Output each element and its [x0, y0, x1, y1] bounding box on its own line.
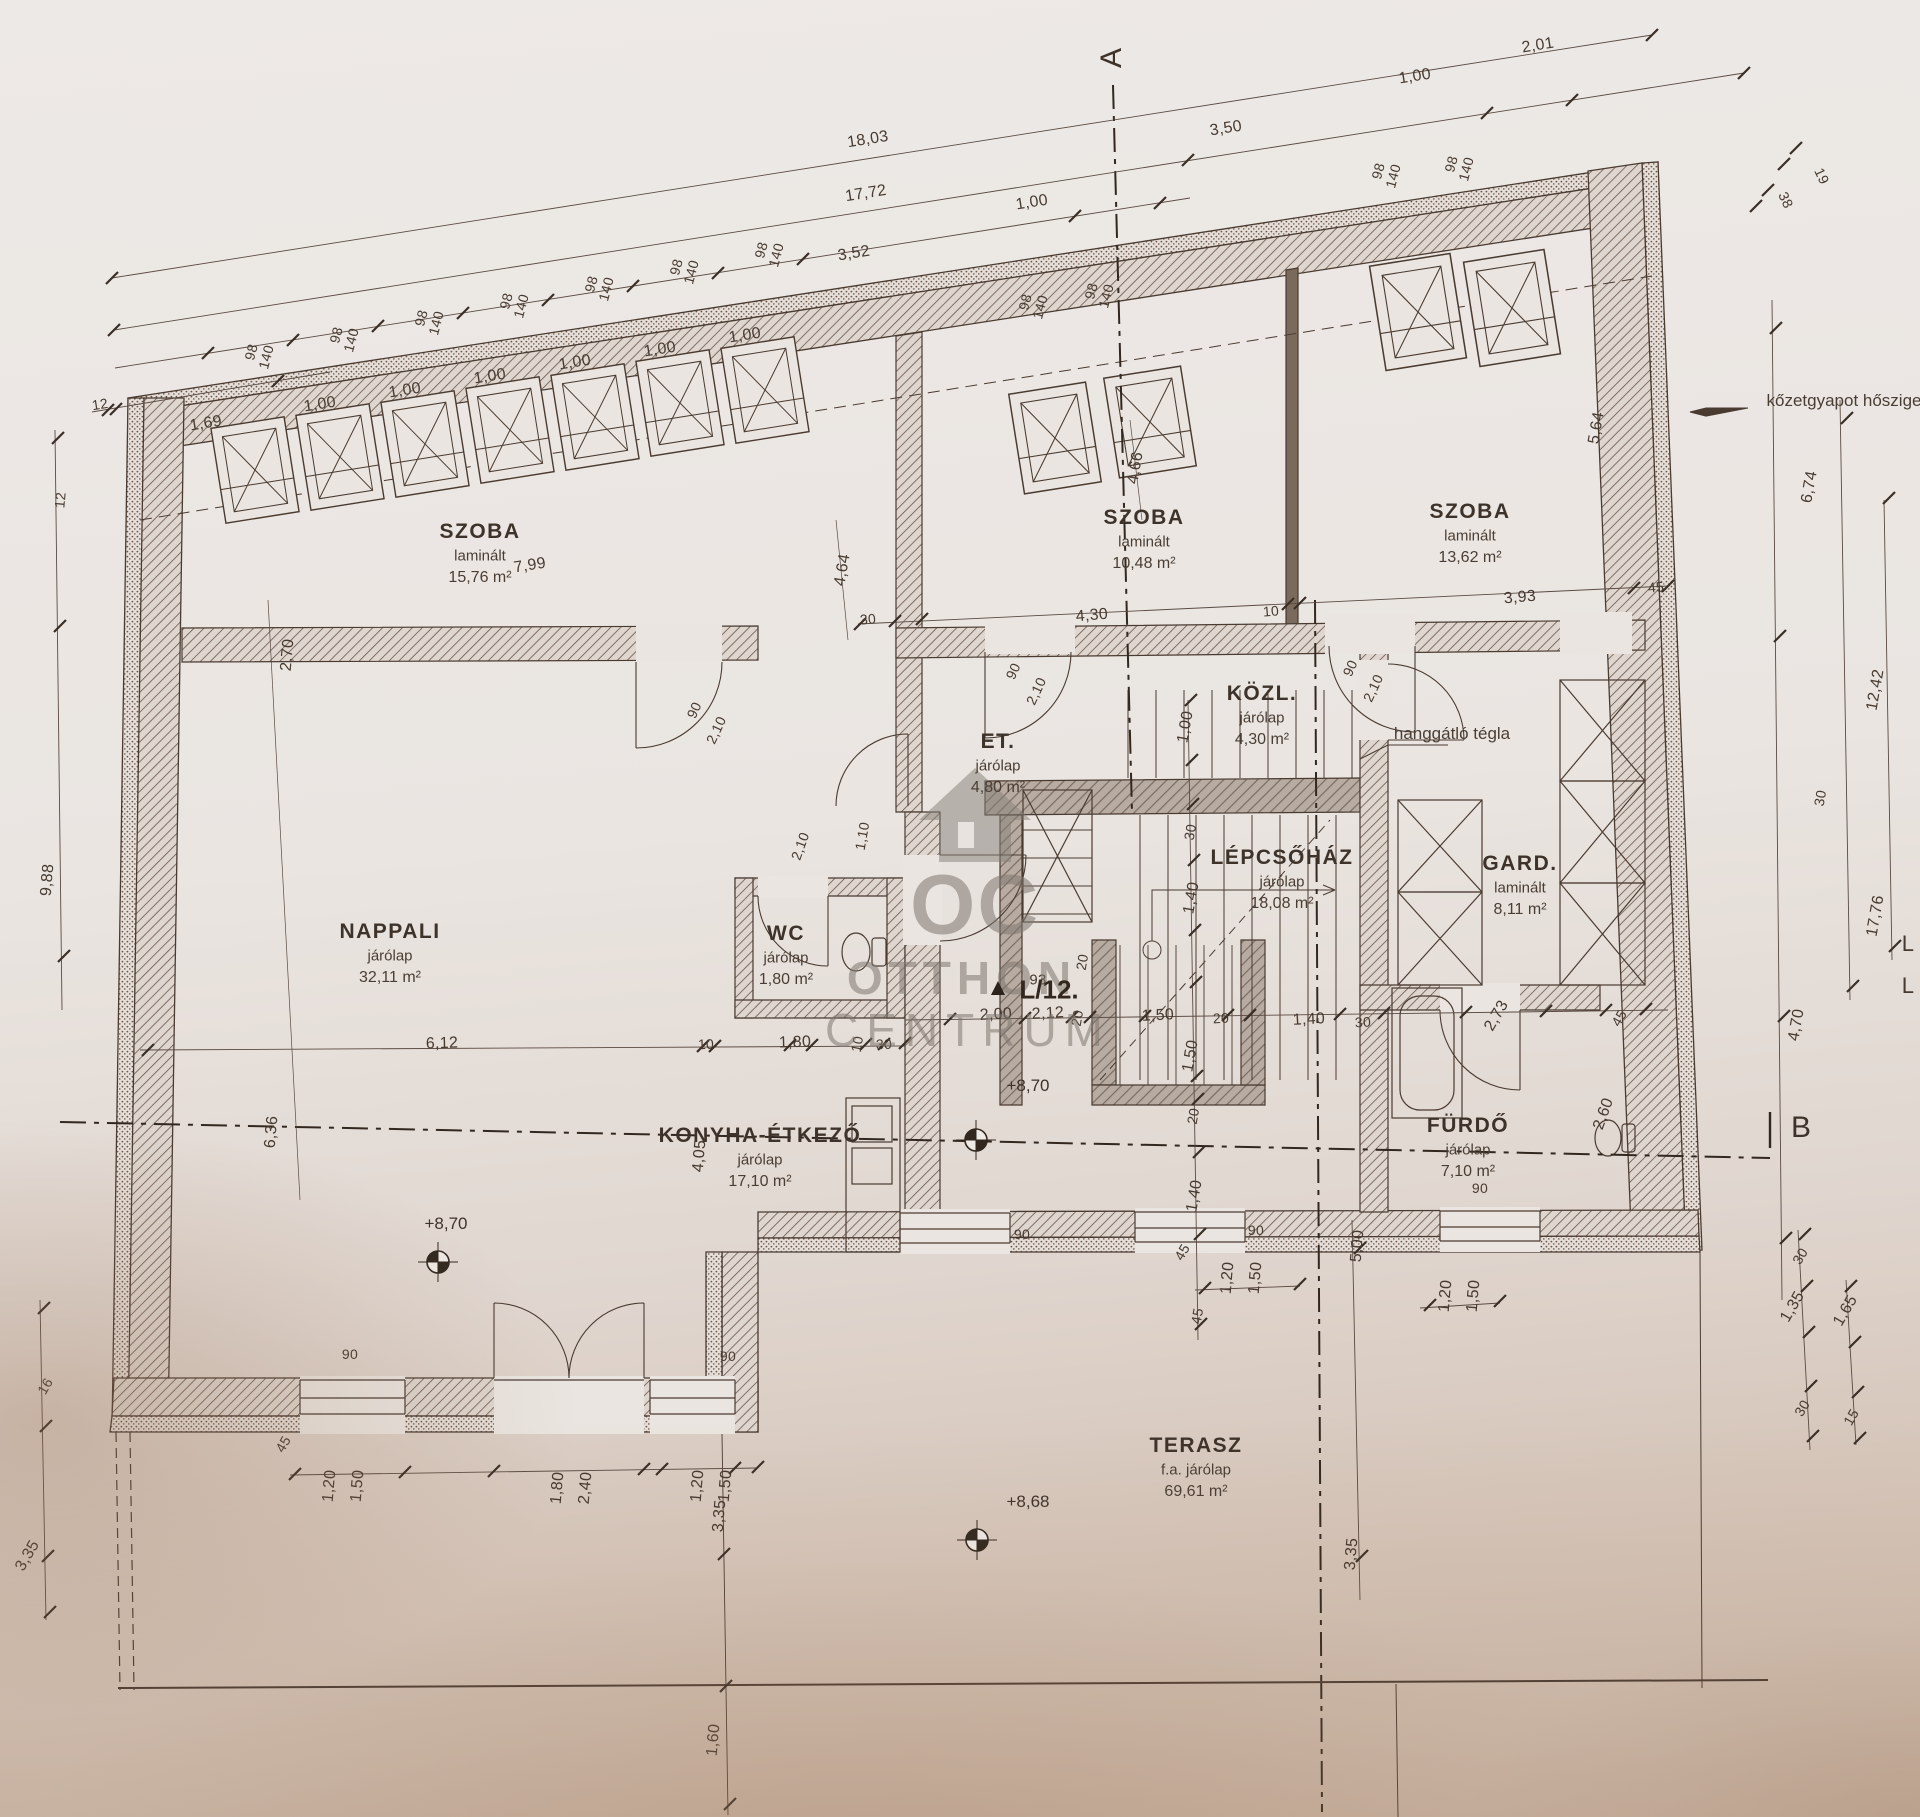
dimension-label: 1,40 — [1292, 1010, 1325, 1030]
elevation-label: +8,70 — [1006, 1076, 1049, 1096]
dimension-label: 1,20 — [1218, 1261, 1239, 1295]
dimension-label: 1,00 — [1015, 192, 1050, 215]
dimension-label: 7,99 — [513, 555, 548, 578]
dimension-label: 1,50 — [1246, 1261, 1267, 1295]
dimension-label: 30 — [1811, 789, 1830, 808]
room-label-name: SZOBA — [1430, 500, 1511, 524]
dimension-label: 6,12 — [426, 1034, 459, 1053]
dimension-label: 1,00 — [473, 366, 508, 389]
watermark-oc: OC — [910, 857, 1040, 954]
dimension-label: 90 — [1014, 1226, 1030, 1242]
dimension-label: 1,50 — [716, 1469, 737, 1503]
dimension-label: 2,73 — [1481, 997, 1513, 1034]
section-marker-b: B — [1791, 1111, 1811, 1145]
dimension-label: 10 — [698, 1036, 715, 1053]
dimension-label: 1,20 — [1436, 1279, 1457, 1313]
dimension-label: 1,50 — [348, 1469, 369, 1503]
dimension-label: 4,64 — [831, 553, 854, 588]
dimension-label: 6,74 — [1798, 470, 1821, 505]
room-label-name: KÖZL. — [1227, 682, 1298, 706]
dimension-label: 45 — [1608, 1007, 1630, 1029]
dimension-label: 4,70 — [1785, 1008, 1808, 1043]
dimension-label: 19 — [1811, 165, 1832, 186]
room-label-area: 1,80 m² — [759, 971, 813, 989]
dimension-label: 20 — [1212, 1010, 1229, 1027]
dimension-label: 3,35 — [710, 1499, 731, 1533]
room-label-name: LÉPCSŐHÁZ — [1210, 846, 1353, 870]
room-label-name: FÜRDŐ — [1427, 1114, 1509, 1138]
room-label-finish: járólap — [1445, 1142, 1490, 1159]
dimension-label: 1,80 — [779, 1033, 812, 1052]
floorplan-page: SZOBAlaminált15,76 m²SZOBAlaminált10,48 … — [0, 0, 1920, 1817]
dimension-label: 4,05 — [690, 1139, 711, 1173]
dimension-label: 1,65 — [1830, 1292, 1862, 1329]
room-label-name: KONYHA-ÉTKEZŐ — [659, 1124, 862, 1148]
dimension-label: 1,20 — [320, 1469, 341, 1503]
dimension-label: 30 — [1354, 1014, 1371, 1031]
dimension-label: 1,40 — [1183, 1179, 1206, 1214]
dimension-label: 10 — [1262, 602, 1280, 619]
dimension-label: 3,93 — [1503, 588, 1537, 609]
room-label-name: WC — [767, 922, 805, 946]
room-label-finish: járólap — [1239, 710, 1284, 727]
dimension-label: 30 — [1791, 1397, 1813, 1419]
dimension-label: 1,80 — [548, 1471, 569, 1505]
dimension-label: 12 — [91, 395, 109, 413]
dimension-label: 90 — [720, 1348, 736, 1364]
room-label-area: 4,30 m² — [1235, 731, 1289, 749]
room-label-name: SZOBA — [1104, 506, 1185, 530]
room-label-name: GARD. — [1482, 852, 1557, 876]
dimension-label: 30 — [1181, 823, 1200, 842]
watermark-line2: CENTRUM — [825, 1003, 1111, 1057]
room-label-finish: laminált — [1118, 534, 1170, 551]
dimension-label: 45 — [1171, 1241, 1193, 1263]
dimension-label: 1,40 — [1180, 881, 1203, 916]
room-label-finish: járólap — [1259, 874, 1304, 891]
room-label-finish: laminált — [1494, 880, 1546, 897]
dimension-label: 1,00 — [728, 325, 763, 348]
dimension-label: 1,00 — [1174, 710, 1197, 745]
dimension-label: 3,52 — [837, 243, 872, 266]
dimension-label: 90 — [342, 1346, 358, 1362]
dimension-label: 15 — [1840, 1406, 1862, 1428]
elevation-label: +8,68 — [1006, 1492, 1049, 1512]
room-label-area: 17,10 m² — [728, 1173, 791, 1191]
dimension-label: 16 — [34, 1375, 56, 1397]
dimension-label: 6,36 — [262, 1115, 283, 1149]
dimension-label: 1,00 — [388, 380, 423, 403]
dimension-label: 90 — [1002, 660, 1023, 681]
dimension-label: 1,20 — [688, 1469, 709, 1503]
apartment-triangle-icon: ▲ — [986, 974, 1010, 1002]
dimension-label: 1,00 — [643, 339, 678, 362]
room-label-finish: laminált — [1444, 528, 1496, 545]
dimension-label: 4,66 — [1124, 451, 1147, 486]
dimension-label: 18,03 — [846, 128, 890, 152]
dimension-label: 12 — [51, 491, 68, 509]
dimension-label: 90 — [683, 699, 704, 720]
room-label-area: 18,08 m² — [1250, 895, 1313, 913]
dimension-label: 2,60 — [1590, 1096, 1618, 1133]
dimension-label: 30 — [859, 610, 877, 627]
room-label-area: 7,10 m² — [1441, 1163, 1495, 1181]
room-label-finish: járólap — [367, 948, 412, 965]
room-label-area: 8,11 m² — [1493, 901, 1546, 919]
elevation-label: +8,70 — [424, 1214, 467, 1234]
dimension-label: 90 — [1248, 1222, 1264, 1238]
room-label-name: NAPPALI — [339, 920, 440, 944]
dimension-label: 5,00 — [1348, 1229, 1369, 1263]
room-label-name: ET. — [981, 730, 1016, 754]
dimension-label: L — [1902, 973, 1915, 999]
dimension-label: 1,00 — [558, 352, 593, 375]
dimension-label: 2,01 — [1521, 35, 1556, 58]
room-label-finish: járólap — [763, 950, 808, 967]
room-label-area: 15,76 m² — [448, 569, 511, 587]
room-label-finish: f.a. járólap — [1161, 1462, 1231, 1479]
dimension-label: 5,64 — [1585, 411, 1608, 446]
dimension-label: 1,35 — [1777, 1288, 1809, 1325]
dimension-label: 2,10 — [1023, 675, 1050, 708]
room-label-area: 10,48 m² — [1112, 555, 1175, 573]
dimension-label: 1,60 — [704, 1723, 725, 1757]
dimension-label: 2,10 — [788, 830, 813, 862]
dimension-label: 3,35 — [1342, 1537, 1363, 1571]
dimension-label: 20 — [1184, 1107, 1203, 1126]
dimension-label: 2,10 — [1360, 672, 1387, 705]
dimension-label: 3,35 — [12, 1537, 44, 1574]
room-label-finish: laminált — [454, 548, 506, 565]
dimension-label: 90 — [1472, 1180, 1488, 1196]
dimension-label: 2,70 — [278, 638, 299, 672]
room-label-name: SZOBA — [440, 520, 521, 544]
annotation-note: hanggátló tégla — [1394, 724, 1510, 744]
room-label-area: 13,62 m² — [1438, 549, 1501, 567]
dimension-label: 1,00 — [1398, 66, 1433, 89]
room-label-area: 4,80 m² — [971, 779, 1025, 797]
dimension-label: 45 — [1188, 1307, 1207, 1326]
dimension-label: 12,42 — [1864, 668, 1889, 712]
dimension-label: 3,50 — [1209, 118, 1244, 141]
room-label-finish: járólap — [737, 1152, 782, 1169]
dimension-label: 9,88 — [38, 863, 59, 897]
dimension-label: 30 — [1789, 1245, 1811, 1267]
room-label-name: TERASZ — [1150, 1434, 1243, 1458]
apartment-label: L/12. — [1019, 975, 1078, 1006]
dimension-label: 1,10 — [852, 821, 873, 852]
room-label-finish: járólap — [975, 758, 1020, 775]
dimension-label: 1,50 — [1179, 1039, 1202, 1074]
dimension-label: 1,00 — [303, 394, 338, 417]
dimension-label: 90 — [1339, 657, 1360, 678]
dimension-label: 38 — [1775, 189, 1796, 210]
dimension-label: 1,50 — [1464, 1279, 1485, 1313]
dimension-label: 45 — [272, 1433, 294, 1455]
dimension-label: L — [1902, 931, 1915, 957]
room-label-area: 32,11 m² — [359, 969, 421, 987]
section-marker-a: A — [1095, 48, 1129, 68]
dimension-label: 1,69 — [189, 413, 224, 436]
dimension-label: 2,40 — [576, 1471, 597, 1505]
room-label-area: 69,61 m² — [1164, 1483, 1227, 1501]
dimension-label: 4,30 — [1075, 606, 1109, 627]
dimension-label: 45 — [1647, 578, 1665, 595]
dimension-label: 1,50 — [1141, 1006, 1174, 1026]
annotation-note: kőzetgyapot hőszige — [1767, 391, 1920, 411]
dimension-label: 17,72 — [844, 182, 888, 206]
dimension-label: 17,76 — [1864, 894, 1889, 938]
dimension-label: 2,10 — [703, 714, 730, 747]
